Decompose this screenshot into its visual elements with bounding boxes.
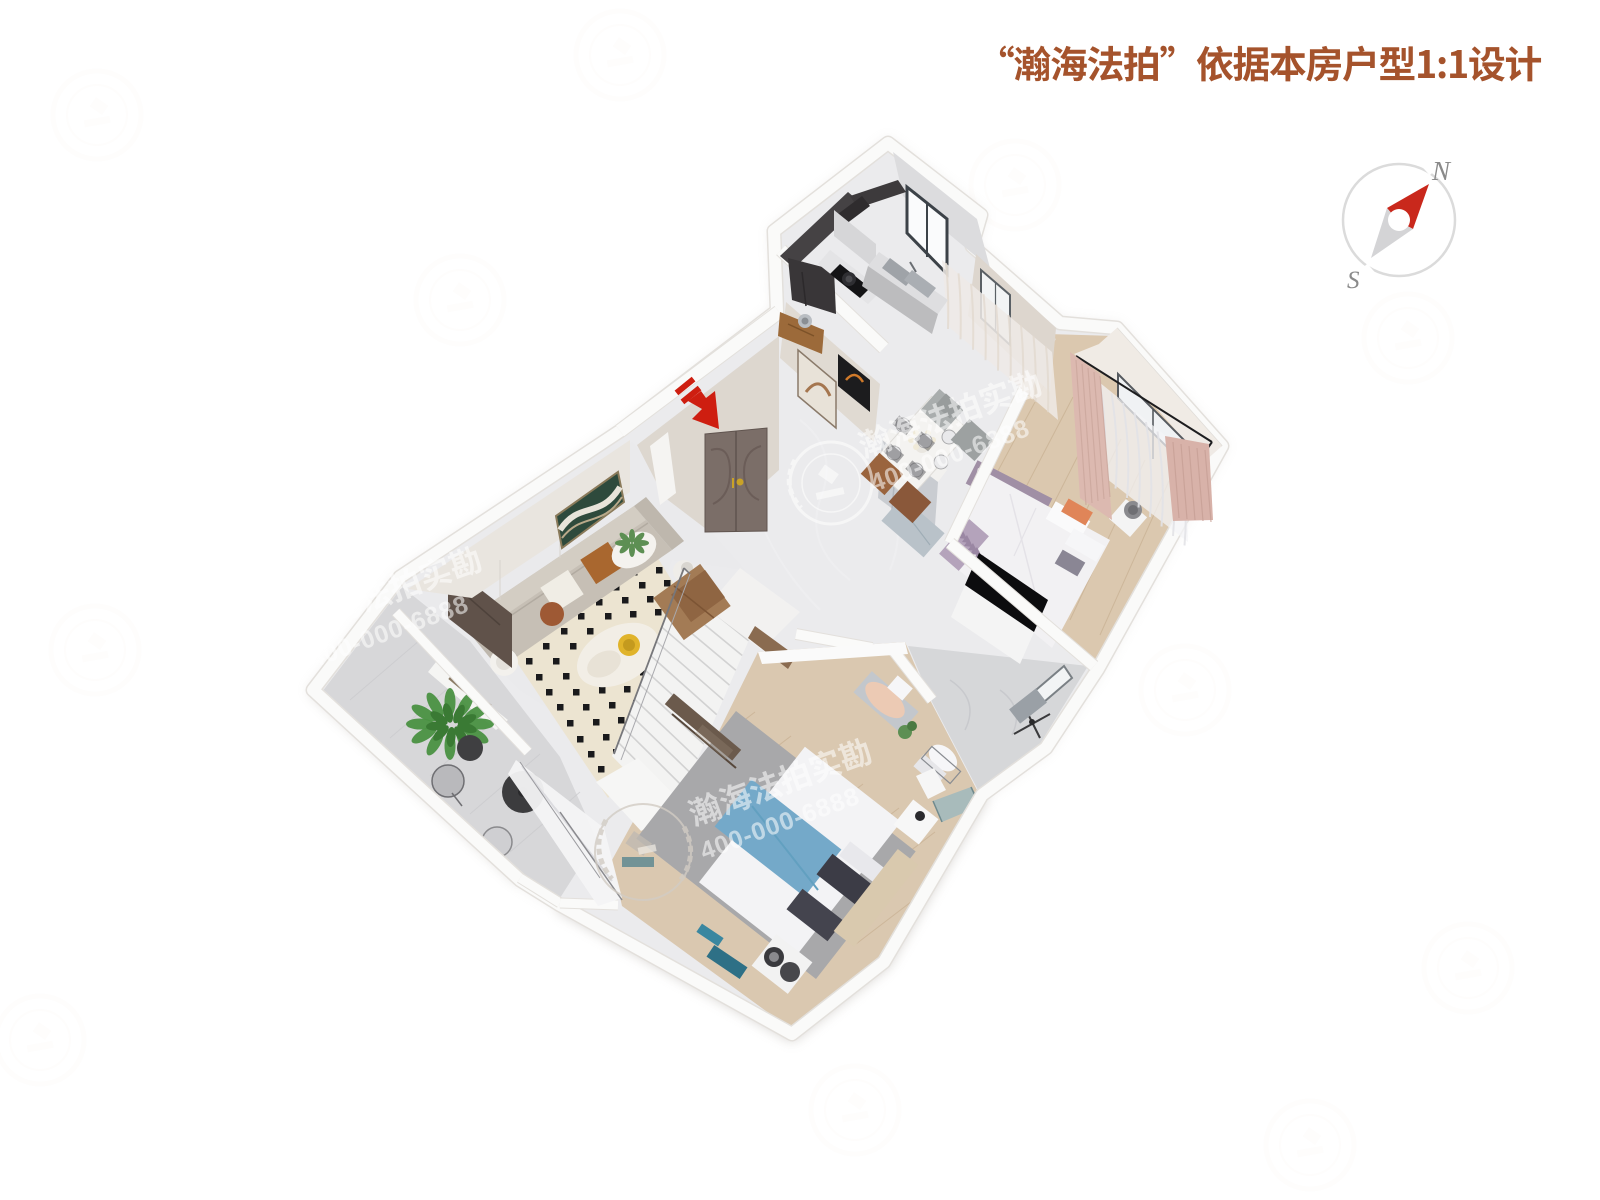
svg-text:S: S: [1347, 267, 1360, 294]
svg-text:N: N: [1431, 156, 1452, 186]
